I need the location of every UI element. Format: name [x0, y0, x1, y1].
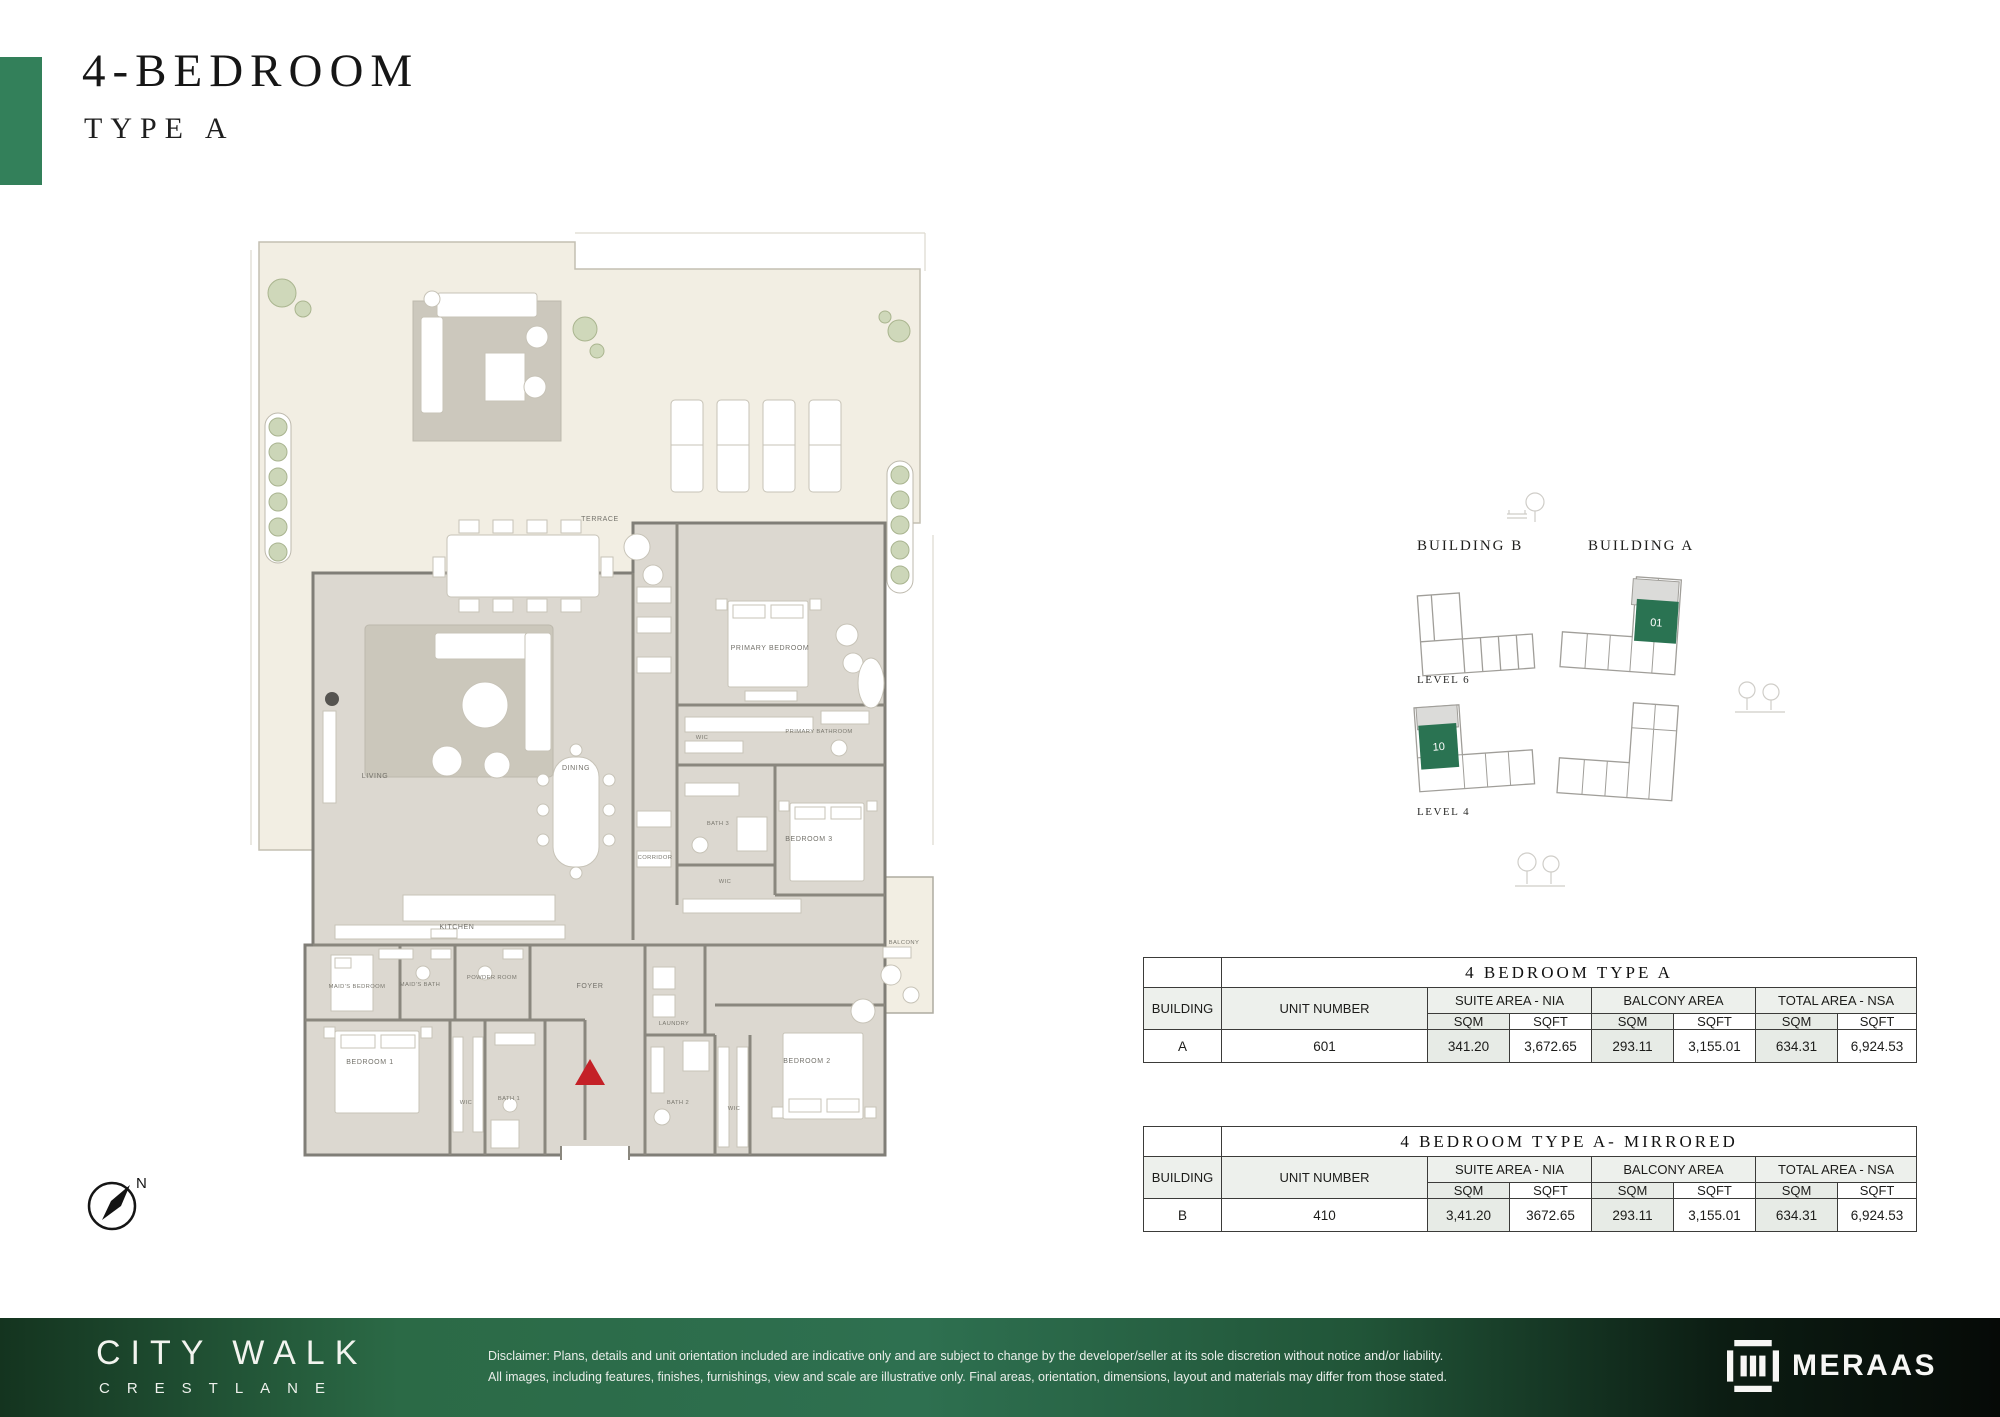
- floor-plan: TERRACE LIVING DINING KITCHEN CORRIDOR P…: [185, 205, 945, 1160]
- area-table-type-a-mirrored: 4 BEDROOM TYPE A- MIRRORED BUILDING UNIT…: [1143, 1126, 1917, 1232]
- table2-title: 4 BEDROOM TYPE A- MIRRORED: [1222, 1127, 1917, 1157]
- meraas-logo: MERAAS: [1727, 1340, 1937, 1392]
- table2-data-row: B 410 3,41.20 3672.65 293.11 3,155.01 63…: [1144, 1199, 1917, 1232]
- room-label-foyer: FOYER: [576, 983, 603, 990]
- room-label-primary-bathroom: PRIMARY BATHROOM: [785, 729, 852, 735]
- table1-title: 4 BEDROOM TYPE A: [1222, 958, 1917, 988]
- brand-city-walk: CITY WALK: [96, 1334, 367, 1373]
- room-label-powder-room: POWDER ROOM: [467, 975, 517, 981]
- table2-cell-suite-sqft: 3672.65: [1510, 1199, 1592, 1232]
- table2-corner-cell: [1144, 1127, 1222, 1157]
- tree-icons: [1507, 493, 1785, 886]
- unit-01-number: 01: [1650, 617, 1663, 630]
- table1-th-balcony: BALCONY AREA: [1592, 988, 1756, 1014]
- column: [325, 692, 339, 706]
- table2-cell-balcony-sqft: 3,155.01: [1674, 1199, 1756, 1232]
- table2-th-suite-sqft: SQFT: [1510, 1183, 1592, 1199]
- room-label-kitchen: KITCHEN: [440, 924, 475, 931]
- compass-north-label: N: [136, 1175, 147, 1192]
- table2-th-balcony-sqm: SQM: [1592, 1183, 1674, 1199]
- table1-cell-total-sqft: 6,924.53: [1838, 1030, 1917, 1063]
- table1-th-suite-sqft: SQFT: [1510, 1014, 1592, 1030]
- table2-th-balcony: BALCONY AREA: [1592, 1157, 1756, 1183]
- table1-th-total-sqm: SQM: [1756, 1014, 1838, 1030]
- table2-cell-total-sqft: 6,924.53: [1838, 1199, 1917, 1232]
- page-title: 4-BEDROOM: [82, 44, 419, 98]
- unit-10-number: 10: [1432, 741, 1445, 754]
- table2-th-building: BUILDING: [1144, 1157, 1222, 1199]
- table1-cell-balcony-sqm: 293.11: [1592, 1030, 1674, 1063]
- building-b-level6: [1417, 588, 1534, 676]
- room-label-dining: DINING: [562, 765, 590, 772]
- table2-th-suite: SUITE AREA - NIA: [1428, 1157, 1592, 1183]
- table1-corner-cell: [1144, 958, 1222, 988]
- table2-th-suite-sqm: SQM: [1428, 1183, 1510, 1199]
- table2-cell-building: B: [1144, 1199, 1222, 1232]
- table1-th-building: BUILDING: [1144, 988, 1222, 1030]
- table1-cell-suite-sqm: 341.20: [1428, 1030, 1510, 1063]
- table1-cell-balcony-sqft: 3,155.01: [1674, 1030, 1756, 1063]
- table2-cell-unit: 410: [1222, 1199, 1428, 1232]
- table1-th-balcony-sqft: SQFT: [1674, 1014, 1756, 1030]
- room-label-maids-bedroom: MAID'S BEDROOM: [329, 984, 386, 990]
- table2-th-total-sqft: SQFT: [1838, 1183, 1917, 1199]
- room-label-laundry: LAUNDRY: [659, 1021, 689, 1027]
- table2-cell-total-sqm: 634.31: [1756, 1199, 1838, 1232]
- table1-th-total-sqft: SQFT: [1838, 1014, 1917, 1030]
- room-label-terrace: TERRACE: [581, 516, 619, 523]
- room-label-corridor: CORRIDOR: [638, 855, 673, 861]
- brand-crestlane: CRESTLANE: [96, 1380, 367, 1397]
- room-label-maids-bath: MAID'S BATH: [400, 982, 441, 988]
- meraas-wordmark: MERAAS: [1792, 1349, 1937, 1383]
- floor-plan-drawing: TERRACE LIVING DINING KITCHEN CORRIDOR P…: [185, 205, 945, 1160]
- room-label-bedroom-2: BEDROOM 2: [783, 1058, 830, 1065]
- table1-cell-unit: 601: [1222, 1030, 1428, 1063]
- brand-logo: CITY WALK CRESTLANE: [96, 1334, 367, 1397]
- disclaimer: Disclaimer: Plans, details and unit orie…: [488, 1346, 1588, 1388]
- disclaimer-line-2: All images, including features, finishes…: [488, 1367, 1588, 1388]
- room-label-wic-4: WIC: [728, 1106, 740, 1112]
- compass: N: [78, 1166, 156, 1244]
- table1-th-suite-sqm: SQM: [1428, 1014, 1510, 1030]
- room-label-bedroom-1: BEDROOM 1: [346, 1059, 393, 1066]
- room-label-living: LIVING: [362, 773, 389, 780]
- table1-th-balcony-sqm: SQM: [1592, 1014, 1674, 1030]
- table2-th-balcony-sqft: SQFT: [1674, 1183, 1756, 1199]
- room-label-primary-bedroom: PRIMARY BEDROOM: [731, 645, 810, 652]
- table1-th-unit: UNIT NUMBER: [1222, 988, 1428, 1030]
- table1-th-total: TOTAL AREA - NSA: [1756, 988, 1917, 1014]
- table1-data-row: A 601 341.20 3,672.65 293.11 3,155.01 63…: [1144, 1030, 1917, 1063]
- room-label-balcony: BALCONY: [889, 940, 920, 946]
- page: { "header": { "title": "4-BEDROOM", "sub…: [0, 0, 2000, 1417]
- room-label-wic-primary: WIC: [696, 735, 708, 741]
- table1-cell-suite-sqft: 3,672.65: [1510, 1030, 1592, 1063]
- room-label-bath-3: BATH 3: [707, 821, 729, 827]
- accent-bar: [0, 57, 42, 185]
- room-label-bedroom-3: BEDROOM 3: [785, 836, 832, 843]
- building-a-level6: 01: [1560, 572, 1681, 675]
- building-b-level4: 10: [1414, 700, 1535, 792]
- table2-th-total: TOTAL AREA - NSA: [1756, 1157, 1917, 1183]
- room-label-bath-1: BATH 1: [498, 1096, 520, 1102]
- table2-cell-suite-sqm: 3,41.20: [1428, 1199, 1510, 1232]
- table2-th-total-sqm: SQM: [1756, 1183, 1838, 1199]
- table1-th-suite: SUITE AREA - NIA: [1428, 988, 1592, 1014]
- meraas-mark-icon: [1727, 1340, 1779, 1392]
- room-label-wic-3: WIC: [460, 1100, 472, 1106]
- disclaimer-line-1: Disclaimer: Plans, details and unit orie…: [488, 1346, 1588, 1367]
- footer: CITY WALK CRESTLANE Disclaimer: Plans, d…: [0, 1318, 2000, 1417]
- key-plan: BUILDING B BUILDING A LEVEL 6 LEVEL 4 01: [1395, 480, 1825, 920]
- key-plan-drawing: 01 10: [1395, 480, 1825, 920]
- room-label-bath-2: BATH 2: [667, 1100, 689, 1106]
- table2-cell-balcony-sqm: 293.11: [1592, 1199, 1674, 1232]
- table1-cell-total-sqm: 634.31: [1756, 1030, 1838, 1063]
- compass-icon: N: [78, 1166, 156, 1244]
- building-a-level4: [1557, 698, 1678, 801]
- table1-cell-building: A: [1144, 1030, 1222, 1063]
- room-label-wic-2: WIC: [719, 879, 731, 885]
- page-subtitle: TYPE A: [84, 112, 235, 146]
- area-table-type-a: 4 BEDROOM TYPE A BUILDING UNIT NUMBER SU…: [1143, 957, 1917, 1063]
- table2-th-unit: UNIT NUMBER: [1222, 1157, 1428, 1199]
